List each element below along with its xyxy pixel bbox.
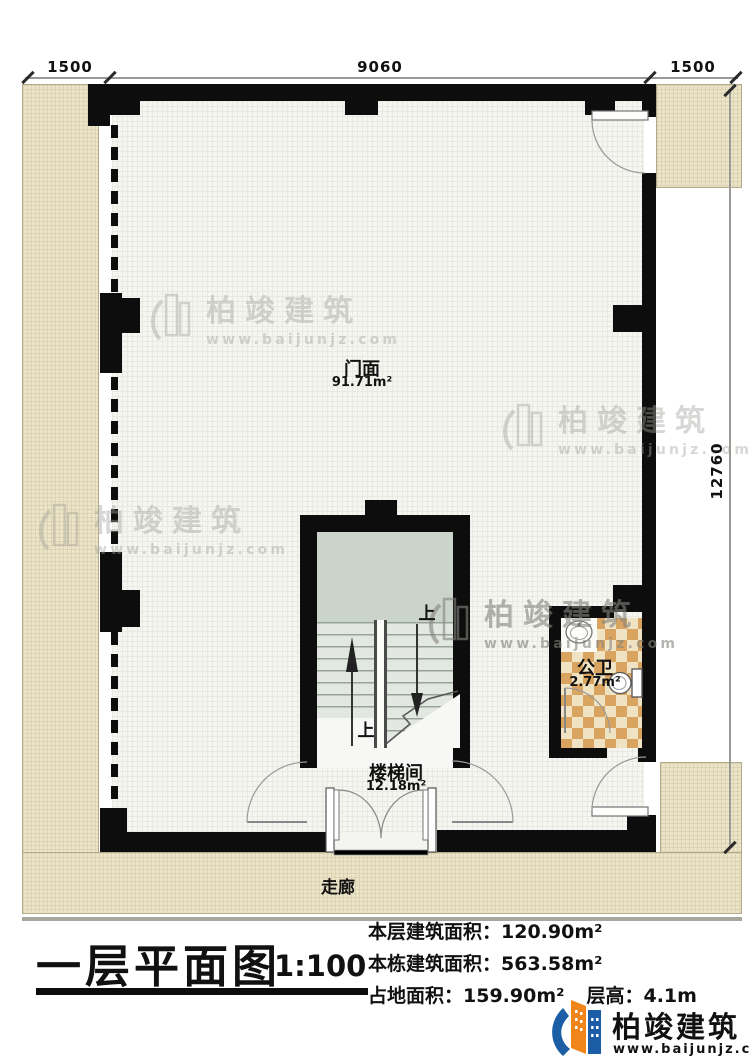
stat-floor-area: 本层建筑面积：120.90m² bbox=[368, 916, 697, 948]
drawing-scale: 1:100 bbox=[274, 949, 366, 983]
dim-right-side: 12760 bbox=[708, 439, 726, 503]
toilet-area: 2.77m² bbox=[560, 675, 630, 690]
company-website: www.baijunjz.com bbox=[613, 1042, 750, 1057]
toilet-door-arc bbox=[565, 688, 610, 733]
stair-up-label-top: 上 bbox=[416, 599, 438, 624]
door-arc-single-right bbox=[452, 761, 513, 822]
door-arc-single-left bbox=[247, 762, 307, 822]
sink-icon bbox=[566, 621, 592, 643]
dim-top-left: 1500 bbox=[40, 58, 100, 76]
area-statistics: 本层建筑面积：120.90m² 本栋建筑面积：563.58m² 占地面积：159… bbox=[368, 916, 697, 1012]
door-arc-bottom-right bbox=[592, 757, 648, 816]
double-entry-door bbox=[326, 788, 436, 855]
stat-value: 563.58m² bbox=[501, 953, 602, 975]
dimension-line-right bbox=[729, 90, 731, 848]
corridor-label: 走廊 bbox=[306, 873, 370, 898]
company-name: 柏竣建筑 bbox=[612, 1004, 740, 1046]
dim-top-mid: 9060 bbox=[350, 58, 410, 76]
linework-overlay bbox=[0, 0, 750, 1062]
stat-label: 本栋建筑面积： bbox=[368, 953, 501, 975]
page-title: 一层平面图 bbox=[36, 930, 281, 995]
stair-break-line-icon bbox=[386, 691, 460, 748]
stat-building-area: 本栋建筑面积：563.58m² bbox=[368, 948, 697, 980]
stair-up-label-bottom: 上 bbox=[355, 716, 377, 741]
floor-plan-canvas: 柏竣建筑 www.baijunjz.com 柏竣建筑 www.baijunjz.… bbox=[0, 0, 750, 1062]
dim-top-right: 1500 bbox=[663, 58, 723, 76]
door-arc-top-right bbox=[592, 111, 648, 173]
stairwell-area: 12.18m² bbox=[346, 779, 446, 794]
title-underline bbox=[36, 988, 368, 995]
stat-label: 本层建筑面积： bbox=[368, 921, 501, 943]
company-logo-icon bbox=[545, 994, 609, 1060]
stat-label: 占地面积： bbox=[368, 985, 463, 1007]
dimension-line-top bbox=[25, 77, 738, 79]
storefront-area: 91.71m² bbox=[322, 375, 402, 390]
stat-value: 120.90m² bbox=[501, 921, 602, 943]
